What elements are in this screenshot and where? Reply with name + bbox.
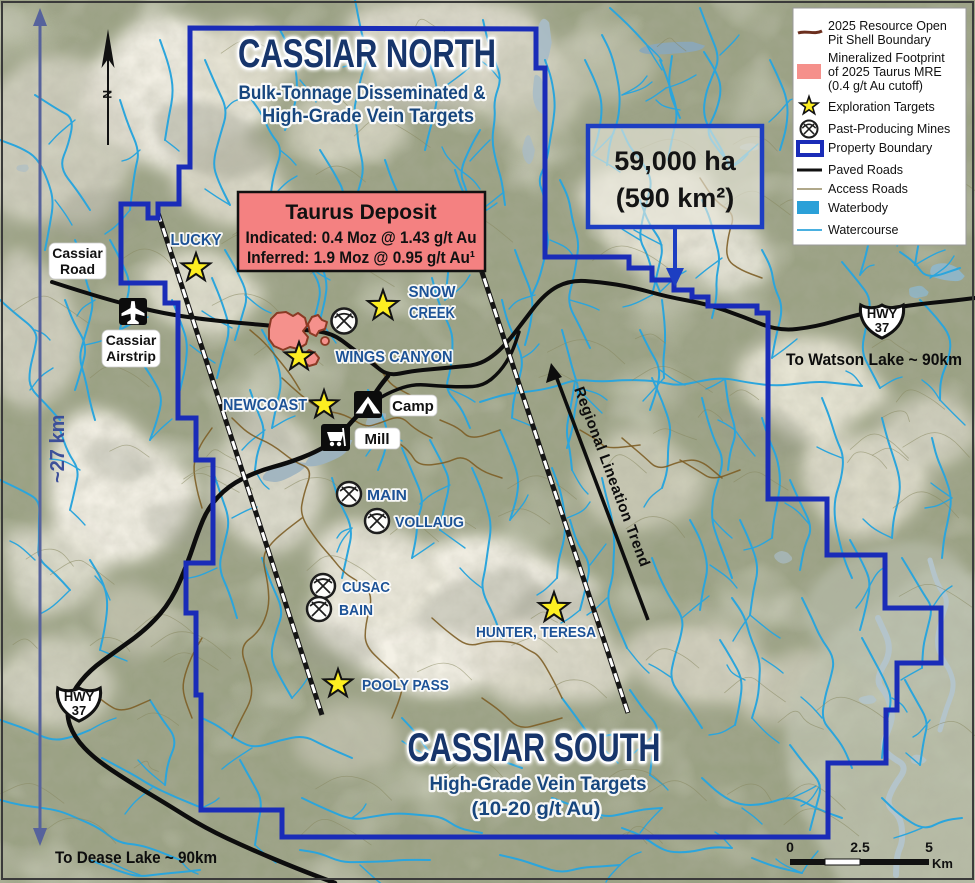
svg-text:HWY: HWY [64, 689, 95, 704]
svg-text:0: 0 [786, 839, 794, 855]
svg-text:Taurus Deposit: Taurus Deposit [285, 201, 436, 224]
svg-text:59,000 ha: 59,000 ha [614, 146, 737, 176]
svg-text:CREEK: CREEK [409, 305, 456, 322]
svg-text:2025 Resource Open: 2025 Resource Open [828, 19, 947, 33]
svg-text:Airstrip: Airstrip [106, 348, 156, 364]
svg-text:Waterbody: Waterbody [828, 201, 889, 215]
svg-text:To Dease Lake ~ 90km: To Dease Lake ~ 90km [55, 848, 217, 867]
svg-text:NEWCOAST: NEWCOAST [223, 397, 307, 414]
svg-text:Camp: Camp [392, 398, 434, 415]
svg-text:BAIN: BAIN [339, 603, 373, 619]
svg-text:CASSIAR SOUTH: CASSIAR SOUTH [408, 726, 661, 770]
svg-text:(0.4 g/t Au cutoff): (0.4 g/t Au cutoff) [828, 79, 923, 93]
svg-text:Cassiar: Cassiar [106, 332, 157, 348]
svg-text:Paved Roads: Paved Roads [828, 163, 903, 177]
svg-text:(10-20 g/t Au): (10-20 g/t Au) [472, 798, 601, 820]
svg-text:Access Roads: Access Roads [828, 182, 908, 196]
svg-text:2.5: 2.5 [850, 839, 870, 855]
svg-text:VOLLAUG: VOLLAUG [395, 515, 464, 531]
svg-text:HUNTER, TERESA: HUNTER, TERESA [476, 624, 596, 641]
svg-text:Exploration Targets: Exploration Targets [828, 100, 935, 114]
svg-text:Inferred: 1.9 Moz @ 0.95 g/t A: Inferred: 1.9 Moz @ 0.95 g/t Au¹ [247, 249, 475, 267]
svg-text:LUCKY: LUCKY [171, 232, 223, 249]
svg-text:To Watson Lake ~ 90km: To Watson Lake ~ 90km [786, 351, 962, 369]
svg-text:Property Boundary: Property Boundary [828, 141, 933, 155]
svg-text:Indicated: 0.4 Moz @ 1.43 g/t: Indicated: 0.4 Moz @ 1.43 g/t Au [246, 229, 477, 247]
svg-text:CUSAC: CUSAC [342, 580, 390, 596]
svg-text:of 2025 Taurus MRE: of 2025 Taurus MRE [828, 65, 942, 79]
svg-text:HWY: HWY [867, 306, 898, 321]
svg-text:Bulk-Tonnage Disseminated &: Bulk-Tonnage Disseminated & [239, 82, 486, 104]
svg-text:N: N [100, 90, 114, 99]
svg-text:Pit Shell Boundary: Pit Shell Boundary [828, 33, 932, 47]
svg-text:Mill: Mill [365, 431, 390, 448]
svg-text:Mineralized Footprint: Mineralized Footprint [828, 51, 945, 65]
svg-text:~27 km: ~27 km [47, 415, 69, 483]
svg-text:Watercourse: Watercourse [828, 223, 898, 237]
svg-text:Km: Km [932, 856, 953, 871]
svg-text:Road: Road [60, 261, 95, 277]
svg-text:37: 37 [875, 320, 889, 335]
svg-text:Cassiar: Cassiar [52, 245, 103, 261]
svg-text:Past-Producing Mines: Past-Producing Mines [828, 122, 950, 136]
svg-text:CASSIAR NORTH: CASSIAR NORTH [238, 32, 496, 76]
svg-text:High-Grade Vein Targets: High-Grade Vein Targets [262, 105, 474, 127]
svg-text:5: 5 [925, 839, 933, 855]
svg-text:37: 37 [72, 703, 86, 718]
svg-text:(590 km²): (590 km²) [616, 183, 735, 213]
svg-text:WINGS CANYON: WINGS CANYON [336, 349, 453, 366]
svg-text:MAIN: MAIN [367, 488, 407, 504]
svg-text:SNOW: SNOW [409, 284, 456, 301]
svg-text:POOLY PASS: POOLY PASS [362, 677, 449, 694]
svg-text:High-Grade Vein Targets: High-Grade Vein Targets [430, 773, 647, 795]
